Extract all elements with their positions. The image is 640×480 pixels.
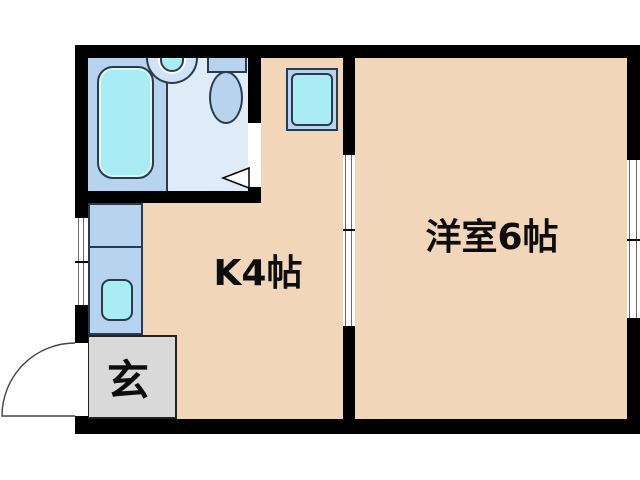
partition-sliding-door [343,155,355,326]
window-right [627,160,640,318]
wall-top [75,45,640,58]
window-left-tick [75,261,88,263]
washing-machine-icon [291,73,333,126]
bathroom-door-opening [248,123,261,187]
wall-bottom [75,419,640,434]
toilet-bowl-icon [209,71,243,124]
kitchen-room-label: K4帖 [214,256,303,292]
wall-partition-lower [343,326,355,419]
window-left [75,218,88,305]
wall-left-lower [75,416,88,434]
kitchen-sink-icon [101,279,133,321]
entrance-door-leaf [75,343,88,416]
wall-bathroom-right-upper [248,58,261,123]
bathtub-icon [97,66,154,179]
kitchen-counter-divider [89,246,142,248]
wall-partition-upper [343,58,355,155]
wall-bathroom-right-lower [248,187,261,203]
floor-plan: K4帖 洋室6帖 玄 [0,0,640,480]
partition-door-tick [343,229,355,231]
wall-bathroom-bottom [75,191,261,203]
window-right-tick [627,239,640,241]
wall-left-mid [75,305,88,343]
partition-door-line [351,155,352,326]
western-room-label: 洋室6帖 [425,220,558,256]
entrance-room-label: 玄 [107,360,149,402]
entrance-door-swing-arc [2,343,75,416]
partition-door-line [345,155,346,326]
